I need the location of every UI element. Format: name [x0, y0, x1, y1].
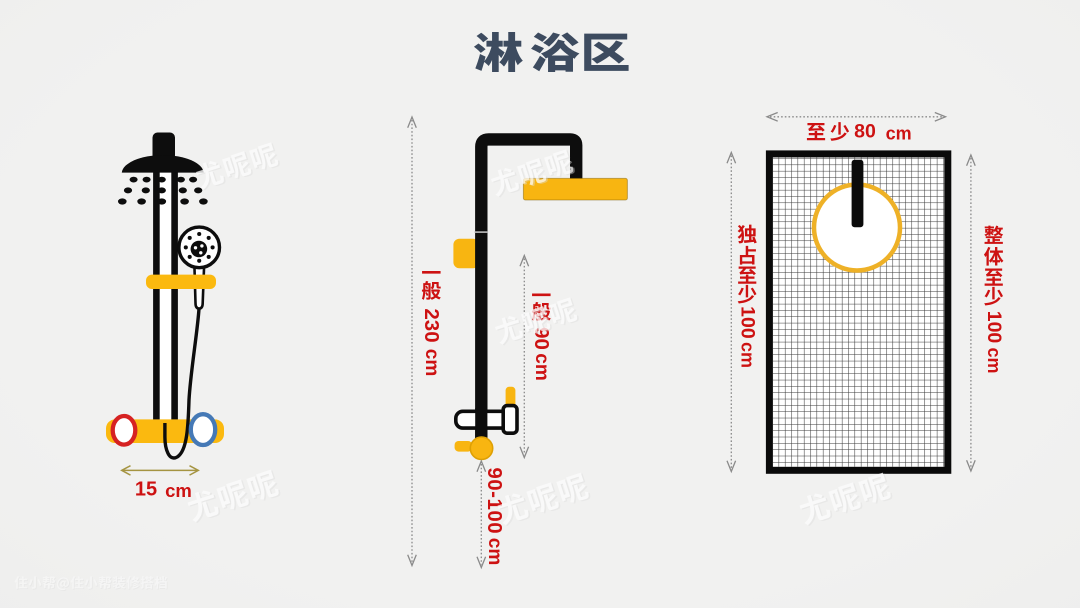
- svg-text:cm: cm: [738, 342, 758, 368]
- svg-text:cm: cm: [984, 347, 1004, 373]
- svg-text:cm: cm: [165, 480, 192, 501]
- svg-text:cm: cm: [886, 123, 912, 143]
- svg-text:cm: cm: [531, 353, 552, 380]
- svg-text:100: 100: [737, 306, 759, 339]
- svg-text:cm: cm: [484, 538, 505, 565]
- svg-text:230: 230: [420, 308, 443, 342]
- svg-text:90-100: 90-100: [483, 467, 506, 534]
- svg-text:80: 80: [854, 120, 876, 142]
- svg-text:15: 15: [135, 478, 157, 500]
- svg-text:100: 100: [983, 311, 1005, 344]
- svg-text:cm: cm: [421, 349, 442, 376]
